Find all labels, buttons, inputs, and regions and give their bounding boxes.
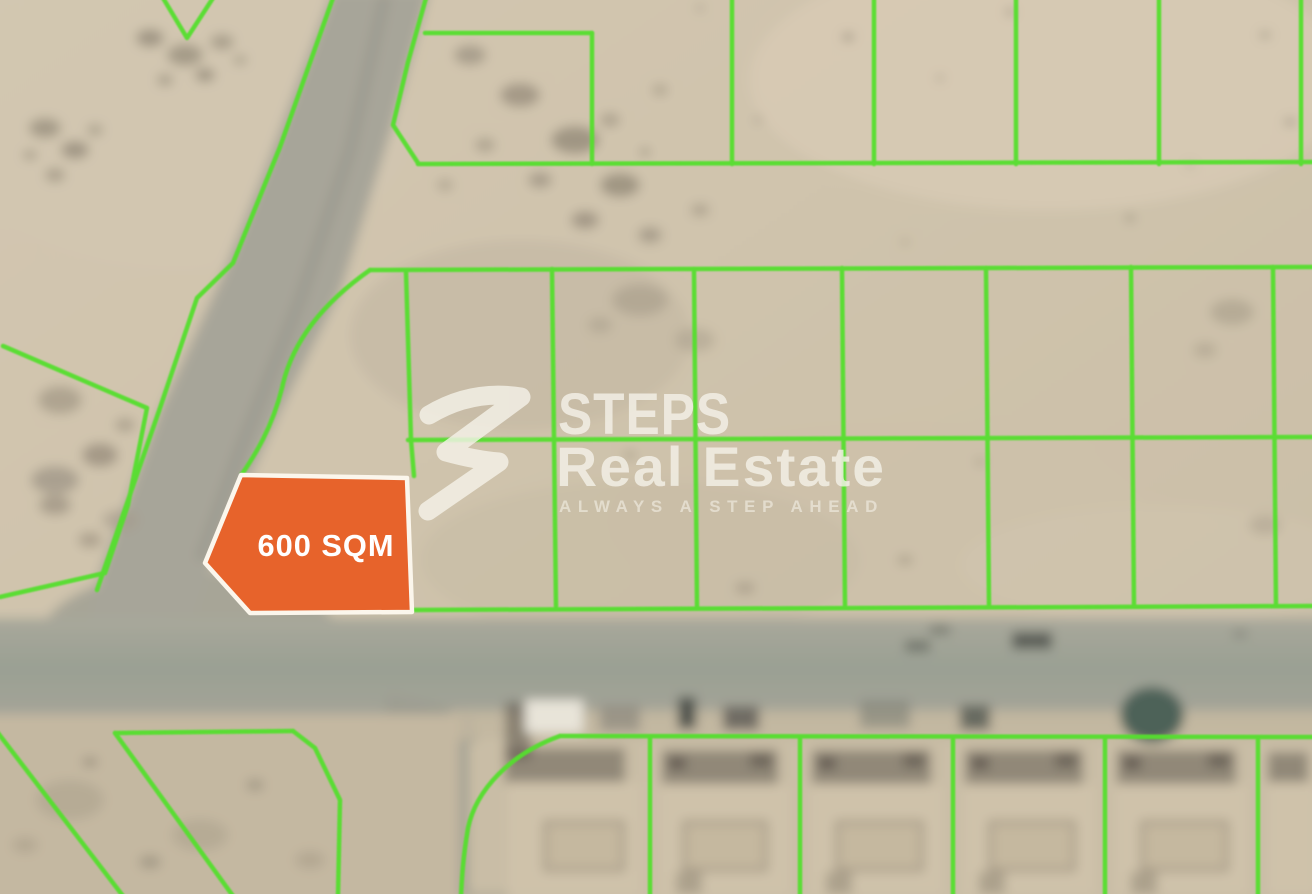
plot-area-label: 600 SQM <box>258 528 395 563</box>
listing-map-image: 600 SQM STEPS Real Estate ALWAYS A STEP … <box>0 0 1312 894</box>
plot-highlight-badge: 600 SQM <box>205 475 412 613</box>
watermark-tagline: ALWAYS A STEP AHEAD <box>559 498 884 516</box>
map-canvas: 600 SQM STEPS Real Estate ALWAYS A STEP … <box>0 0 1312 894</box>
horizontal-road <box>0 618 1312 718</box>
watermark-brand-bottom: Real Estate <box>556 435 886 498</box>
